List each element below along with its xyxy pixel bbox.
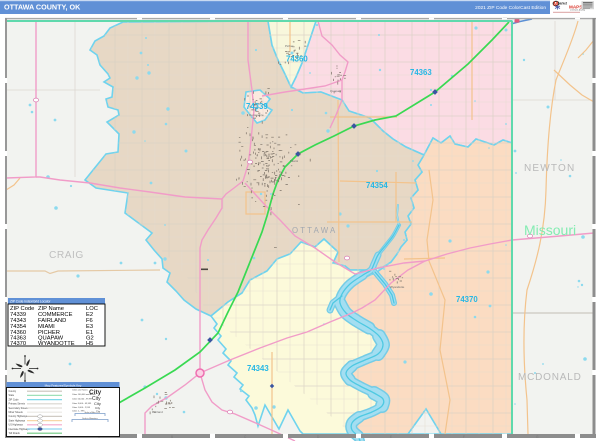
svg-text:Cities 1,000 - 2,999: Cities 1,000 - 2,999 xyxy=(72,406,91,409)
svg-text:Picher: Picher xyxy=(285,44,294,48)
svg-text:County: County xyxy=(9,390,17,393)
svg-text:74339: 74339 xyxy=(246,102,268,111)
svg-text:County Highways: County Highways xyxy=(9,415,28,418)
svg-text:ZIP Code Index/Grid Locator: ZIP Code Index/Grid Locator xyxy=(10,300,51,304)
svg-text:Wyandotte: Wyandotte xyxy=(390,285,405,289)
svg-text:Secondary Streets: Secondary Streets xyxy=(9,407,29,410)
svg-text:MAPS: MAPS xyxy=(569,4,582,9)
svg-text:MCDONALD: MCDONALD xyxy=(518,372,582,383)
svg-text:City: City xyxy=(95,406,101,410)
svg-text:Toll Roads: Toll Roads xyxy=(9,432,21,435)
svg-text:CRAIG: CRAIG xyxy=(49,250,84,261)
svg-text:Cities 50,000 - 99,999: Cities 50,000 - 99,999 xyxy=(72,398,93,401)
svg-text:Cities 3,000 - 49,999: Cities 3,000 - 49,999 xyxy=(72,402,92,405)
svg-text:Miami: Miami xyxy=(290,159,298,163)
svg-text:E: E xyxy=(390,435,392,439)
svg-text:H5: H5 xyxy=(86,341,93,347)
svg-text:State Highways: State Highways xyxy=(9,419,26,422)
svg-text:Scale in Miles: Scale in Miles xyxy=(84,412,95,414)
svg-text:OTTAWA COUNTY, OK: OTTAWA COUNTY, OK xyxy=(4,3,81,12)
svg-text:Missouri: Missouri xyxy=(524,222,576,238)
svg-text:Quapaw: Quapaw xyxy=(330,89,342,93)
svg-text:F: F xyxy=(463,435,465,439)
svg-text:74354: 74354 xyxy=(366,181,388,190)
svg-text:Scale in Kilometers: Scale in Kilometers xyxy=(82,417,97,420)
svg-text:74370: 74370 xyxy=(10,341,26,347)
svg-text:2021 ZIP Code ColorCast Editio: 2021 ZIP Code ColorCast Edition xyxy=(475,5,546,11)
svg-text:Fairland: Fairland xyxy=(152,410,163,414)
svg-text:74343: 74343 xyxy=(247,364,269,373)
svg-text:WYANDOTTE: WYANDOTTE xyxy=(38,341,75,347)
svg-text:NEWTON: NEWTON xyxy=(524,163,575,174)
svg-text:ZIP Code: ZIP Code xyxy=(9,398,20,401)
svg-text:Map Features/Symbols Key: Map Features/Symbols Key xyxy=(45,383,82,387)
svg-text:Primary Streets: Primary Streets xyxy=(9,403,26,406)
svg-text:US Highways: US Highways xyxy=(9,424,24,427)
svg-text:74370: 74370 xyxy=(456,295,478,304)
svg-text:Cities and Towns: Cities and Towns xyxy=(72,389,88,392)
svg-text:74360: 74360 xyxy=(286,55,308,64)
svg-text:arket: arket xyxy=(560,2,569,6)
svg-text:OTTAWA: OTTAWA xyxy=(292,226,337,235)
svg-text:Minor Streets: Minor Streets xyxy=(9,411,24,414)
svg-text:Commerce: Commerce xyxy=(249,113,264,117)
svg-text:B: B xyxy=(171,435,173,439)
svg-text:74363: 74363 xyxy=(410,68,432,77)
svg-text:Cities 1 - 999: Cities 1 - 999 xyxy=(72,410,85,413)
svg-text:City: City xyxy=(89,389,102,396)
svg-text:State: State xyxy=(9,394,15,397)
